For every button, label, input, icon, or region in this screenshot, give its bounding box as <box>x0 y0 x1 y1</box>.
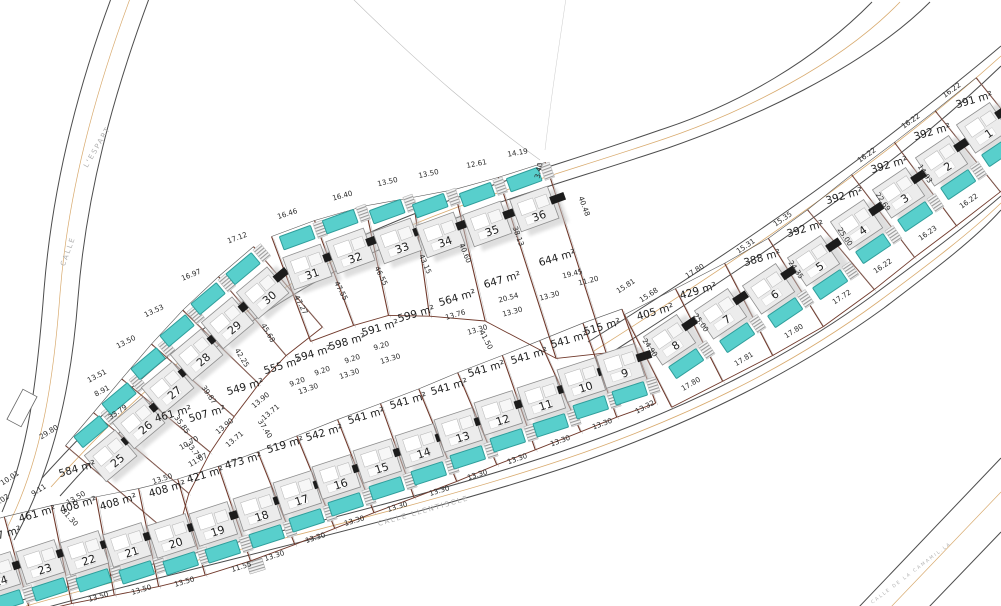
plot-front-boundary <box>0 517 4 529</box>
dimension-label: 17.81 <box>733 350 755 368</box>
plot-area-label: 541 m² <box>549 329 589 351</box>
plot-area-label: 647 m² <box>482 269 522 291</box>
dimension-label: 12.61 <box>466 157 488 170</box>
dimension-label: 14.19 <box>507 146 529 159</box>
street-label-calle-l-espart: L'ESPART <box>82 125 112 169</box>
stairs-hatch <box>646 377 660 395</box>
houses-layer: 2526272829303132333435368765432124232221… <box>0 95 1001 606</box>
dimension-label: 13.30 <box>549 433 572 449</box>
road-camamilla-outer <box>858 458 1001 606</box>
dimension-label: 13.30 <box>379 351 402 366</box>
road-camamilla-inner <box>928 532 1001 606</box>
dimension-label: 13.30 <box>538 288 561 302</box>
dimension-label: 16.22 <box>900 111 922 130</box>
stairs-hatch <box>446 188 461 206</box>
dimension-label: 40.48 <box>577 195 593 218</box>
dimension-label: 15.81 <box>615 277 637 296</box>
field-boundary-line <box>352 0 540 160</box>
dimension-label: 10.01 <box>0 469 21 488</box>
dimension-label: 3.40 <box>532 161 544 179</box>
site-plan-drawing: 2526272829303132333435368765432124232221… <box>0 0 1001 606</box>
dimension-label: 16.46 <box>276 206 299 221</box>
dimension-label: 13.30 <box>591 416 614 432</box>
pool <box>412 193 448 217</box>
pool <box>279 225 315 249</box>
dimension-label: 13.50 <box>115 333 138 351</box>
dimension-label: 9.20 <box>343 352 361 366</box>
traffic-island <box>7 389 37 427</box>
dimension-label: 13.53 <box>143 302 165 319</box>
dimension-label: 8.91 <box>93 383 111 398</box>
dimension-label: 13.30 <box>501 304 524 318</box>
dimension-label: 17.80 <box>783 321 806 340</box>
dimension-label: 13.71 <box>260 402 282 422</box>
dimension-label: 16.22 <box>872 256 894 275</box>
dimension-label: 13.50 <box>376 175 398 188</box>
street-label-calle-l-espart: CALLE <box>59 235 77 267</box>
dimension-label: 11.55 <box>230 559 252 574</box>
dimension-label: 16.97 <box>180 267 202 283</box>
plot-area-label: 7 m² <box>0 524 23 542</box>
plot-area-label: 542 m² <box>304 422 344 444</box>
dimension-label: 13.30 <box>338 366 361 381</box>
pool <box>459 182 495 206</box>
plot-area-label: 591 m² <box>360 317 400 339</box>
dimension-label: 15.68 <box>638 285 661 304</box>
plot-area-label: 541 m² <box>509 345 549 367</box>
dimension-label: 16.40 <box>331 188 354 202</box>
dimension-label: 17.12 <box>226 230 248 245</box>
dimension-label: 15.35 <box>772 209 794 228</box>
dimension-label: 9.20 <box>372 339 390 352</box>
plot-area-label: 541 m² <box>429 376 469 398</box>
dimension-label: 16.22 <box>941 80 963 99</box>
site-plan-canvas: 2526272829303132333435368765432124232221… <box>0 0 1001 606</box>
dimension-label: 9.11 <box>29 482 47 498</box>
stairs-hatch <box>356 204 371 222</box>
plot-area-label: 461 m² <box>17 503 57 525</box>
plot-area-label: 408 m² <box>98 491 138 513</box>
plot-area-label: 541 m² <box>388 390 428 412</box>
dimension-label: 17.80 <box>684 261 707 280</box>
plot-area-label: 541 m² <box>346 405 386 427</box>
plot-area-label: 594 m² <box>293 343 333 365</box>
dimension-label: 39.87 <box>200 384 219 406</box>
dimension-label: 47.27 <box>292 294 310 316</box>
dimension-label: 13.51 <box>86 367 108 385</box>
dimension-label: 20.54 <box>497 290 520 304</box>
plot-area-label: 515 m² <box>582 316 622 338</box>
dimension-label: 11.07 <box>187 451 209 469</box>
dimension-label: 13.30 <box>466 467 489 482</box>
dimension-label: 13.30 <box>428 483 451 498</box>
plot-area-label: 598 m² <box>327 331 367 353</box>
dimension-label: 46.55 <box>373 265 390 287</box>
stairs-hatch <box>493 177 508 195</box>
dimension-label: 29.80 <box>38 422 61 441</box>
dimension-label: 13.50 <box>417 167 439 180</box>
plot-area-label: 599 m² <box>396 303 436 325</box>
dimension-label: 13.50 <box>173 574 196 588</box>
field-boundary-line <box>545 0 566 150</box>
dimension-label: 13.71 <box>224 429 246 449</box>
dimension-label: 13.32 <box>634 398 656 416</box>
dimension-label: 47.55 <box>332 280 350 302</box>
dimension-label: 13.76 <box>444 307 467 321</box>
dimension-label: 17.80 <box>680 375 703 393</box>
plot-area-label: 564 m² <box>437 287 477 309</box>
dimension-label: 9.20 <box>313 364 331 378</box>
dimension-label: 13.50 <box>87 589 110 603</box>
plot-area-label: 473 m² <box>223 450 263 472</box>
dimension-label: 42.25 <box>233 347 252 369</box>
plot-area-label: 644 m² <box>537 247 577 269</box>
dimension-label: 16.22 <box>958 191 980 210</box>
dimension-label: 45.68 <box>259 322 277 345</box>
dimension-label: 13.30 <box>506 451 529 466</box>
dimension-label: 16.23 <box>917 223 939 242</box>
dimension-label: 16.22 <box>856 145 878 164</box>
plot-area-label: 519 m² <box>265 434 305 456</box>
